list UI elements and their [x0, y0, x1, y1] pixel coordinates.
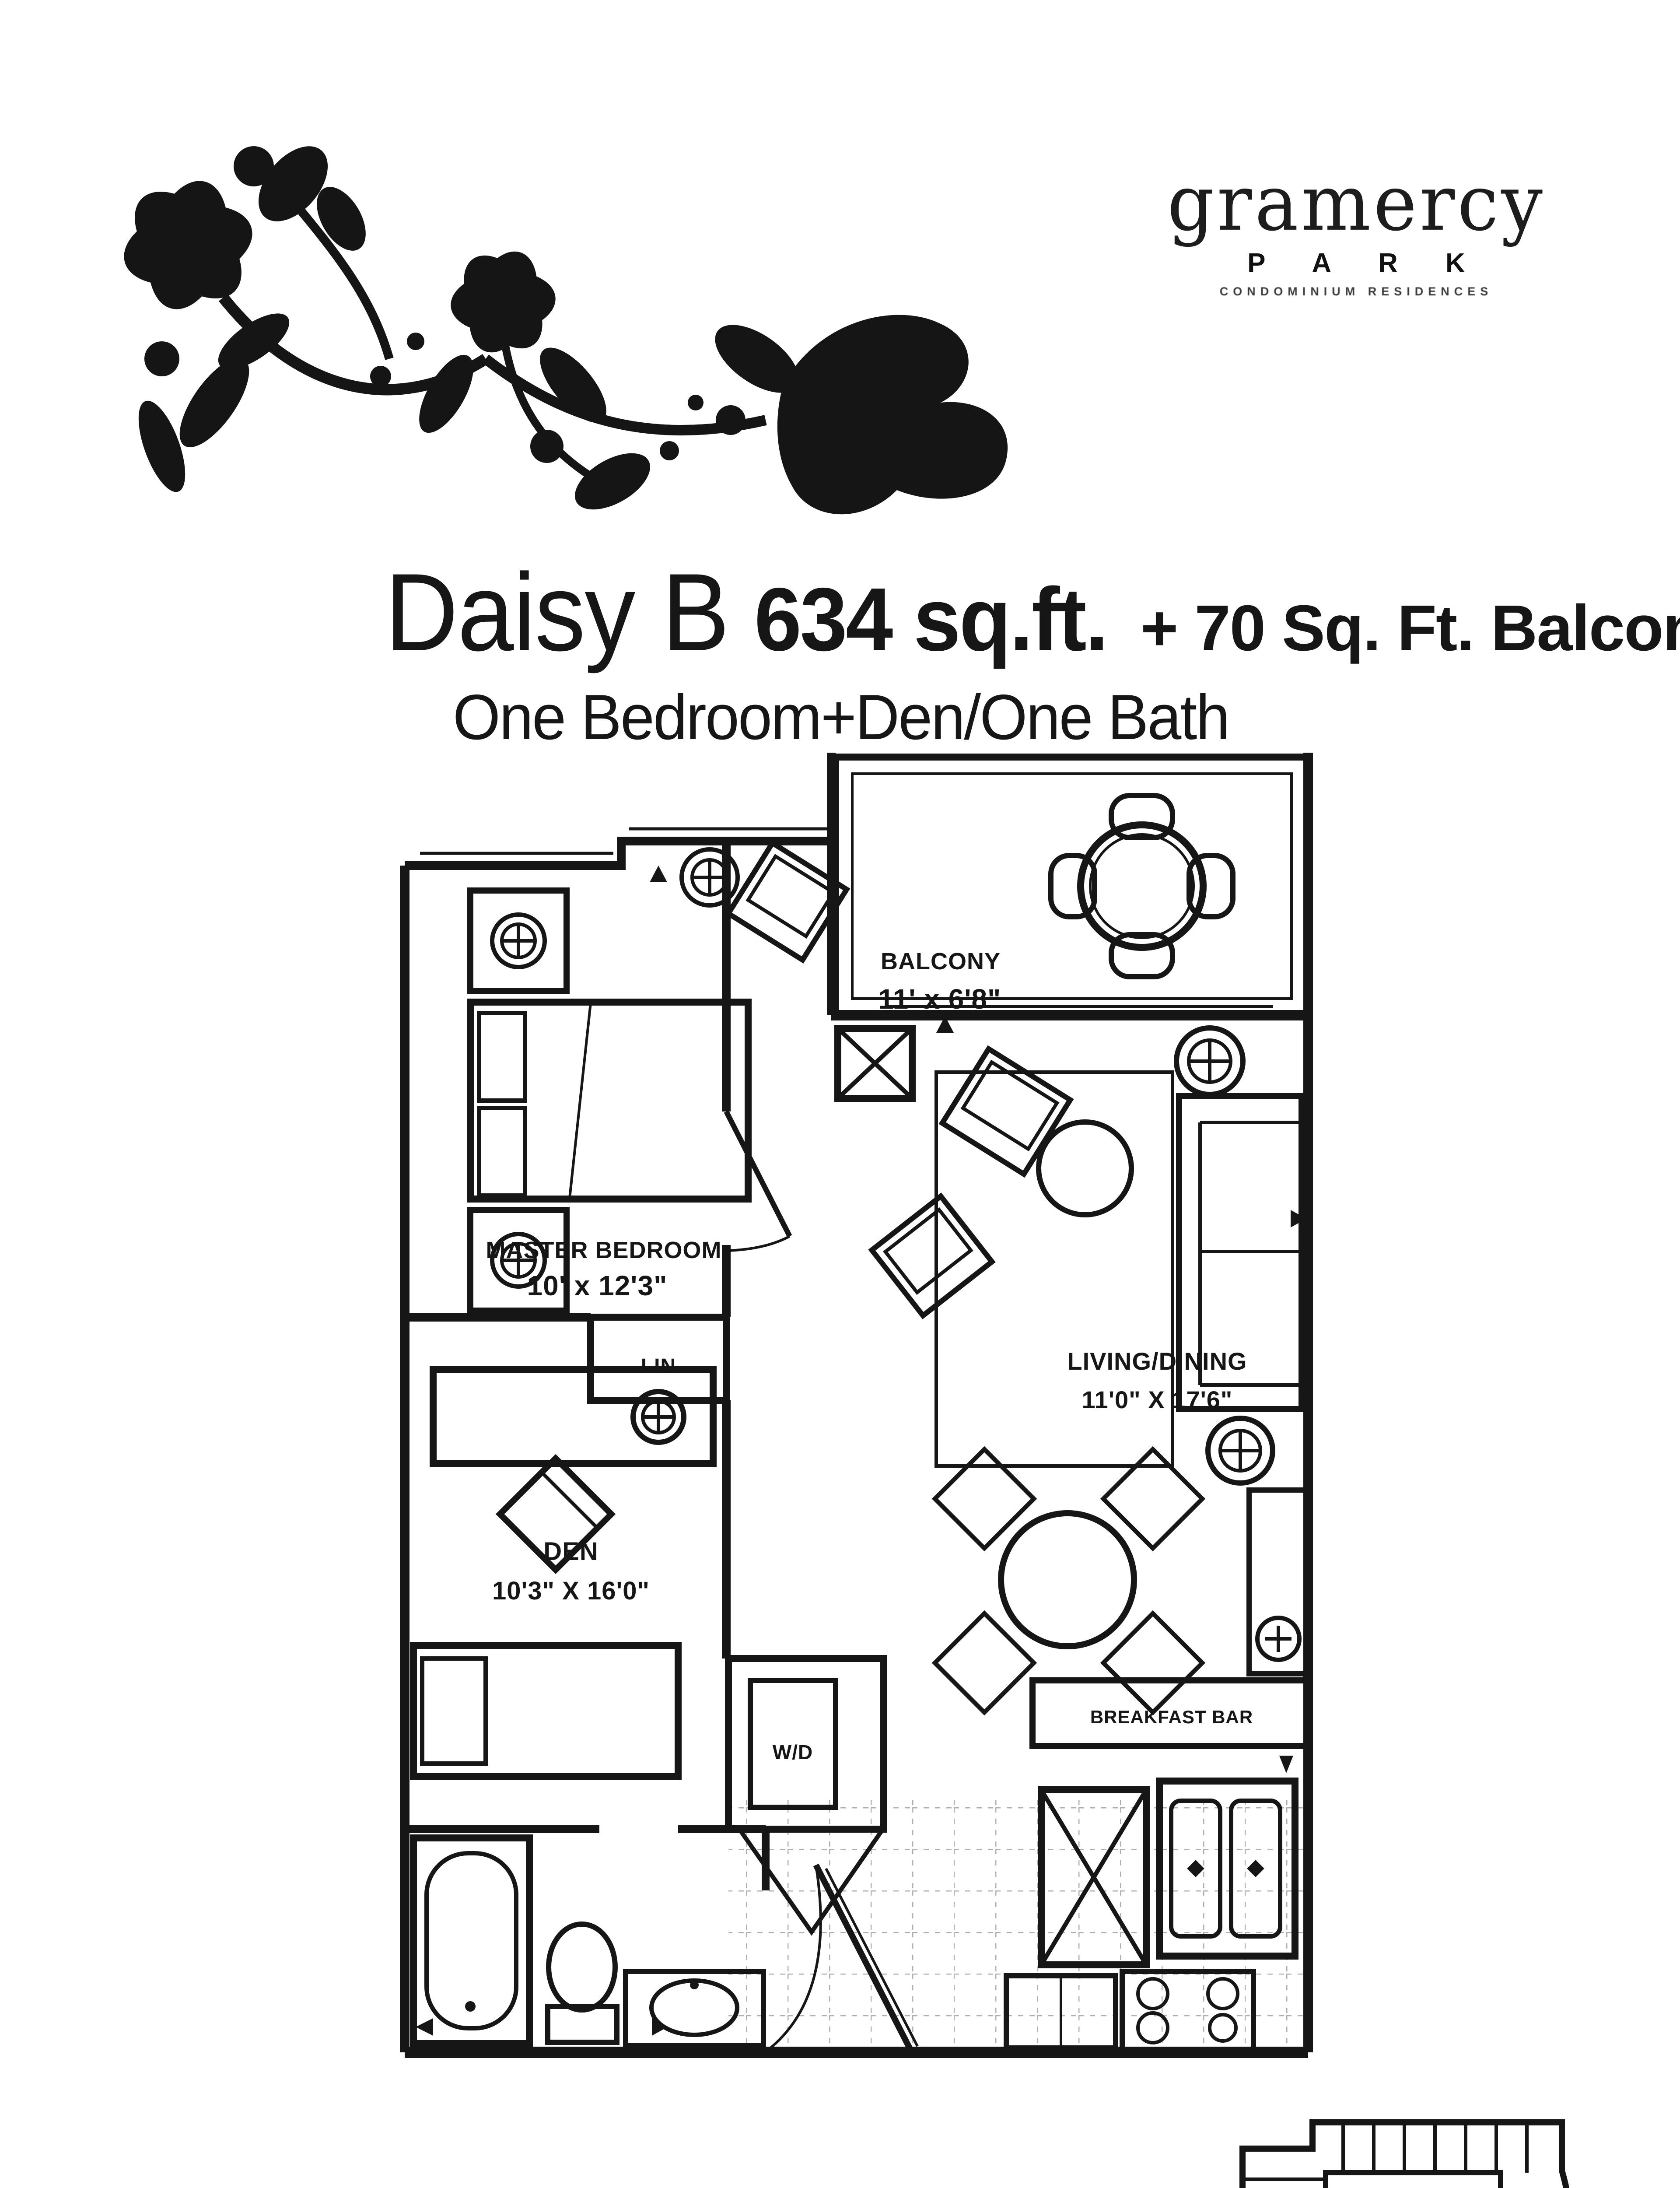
den-dims: 10'3" X 16'0"	[492, 1577, 650, 1605]
floorplan-drawing: BALCONY 11' x 6'8" LIN	[372, 726, 1356, 2083]
toilet	[549, 1924, 615, 2010]
laundry-label: W/D	[773, 1741, 813, 1764]
bathroom	[413, 1838, 763, 2046]
keyplan: 34	[1216, 2083, 1592, 2188]
armchair	[942, 1049, 1071, 1174]
den-label: DEN	[543, 1537, 598, 1566]
floral-ornament	[109, 114, 1028, 543]
daybed	[413, 1645, 678, 1777]
coffee-table	[1039, 1122, 1131, 1215]
plan-area: 634 sq.ft.	[754, 568, 1107, 671]
bathtub	[413, 1838, 529, 2044]
brand-park: P A R K	[1146, 248, 1566, 279]
master-label: MASTER BEDROOM	[486, 1237, 722, 1263]
plan-name: Daisy B	[385, 549, 729, 676]
den	[413, 1370, 713, 1777]
plan-balcony-area: + 70 Sq. Ft. Balcony	[1141, 591, 1680, 666]
living-dims: 11'0" X 17'6"	[1082, 1386, 1233, 1413]
plan-title-row: Daisy B 634 sq.ft. + 70 Sq. Ft. Balcony	[385, 549, 1680, 676]
brand-logo: gramercy P A R K CONDOMINIUM RESIDENCES	[1146, 166, 1566, 298]
brand-name: gramercy	[1146, 165, 1566, 242]
brand-tagline: CONDOMINIUM RESIDENCES	[1146, 285, 1566, 298]
dining-table	[1001, 1513, 1134, 1646]
living-label: LIVING/DINING	[1067, 1347, 1247, 1375]
balcony	[836, 757, 1308, 1015]
foyer-nook	[682, 843, 847, 960]
armchair	[872, 1196, 992, 1316]
bed-pillow	[479, 1108, 525, 1196]
master-dims: 10' x 12'3"	[527, 1270, 668, 1301]
floorplan-page: gramercy P A R K CONDOMINIUM RESIDENCES …	[0, 0, 1680, 2188]
balcony-table	[1081, 825, 1203, 947]
dining-set	[935, 1449, 1202, 1712]
balcony-label: BALCONY	[881, 948, 1001, 975]
daybed-pillow	[422, 1659, 486, 1764]
breakfast-bar-label: BREAKFAST BAR	[1090, 1707, 1253, 1727]
bed-pillow	[479, 1013, 525, 1101]
